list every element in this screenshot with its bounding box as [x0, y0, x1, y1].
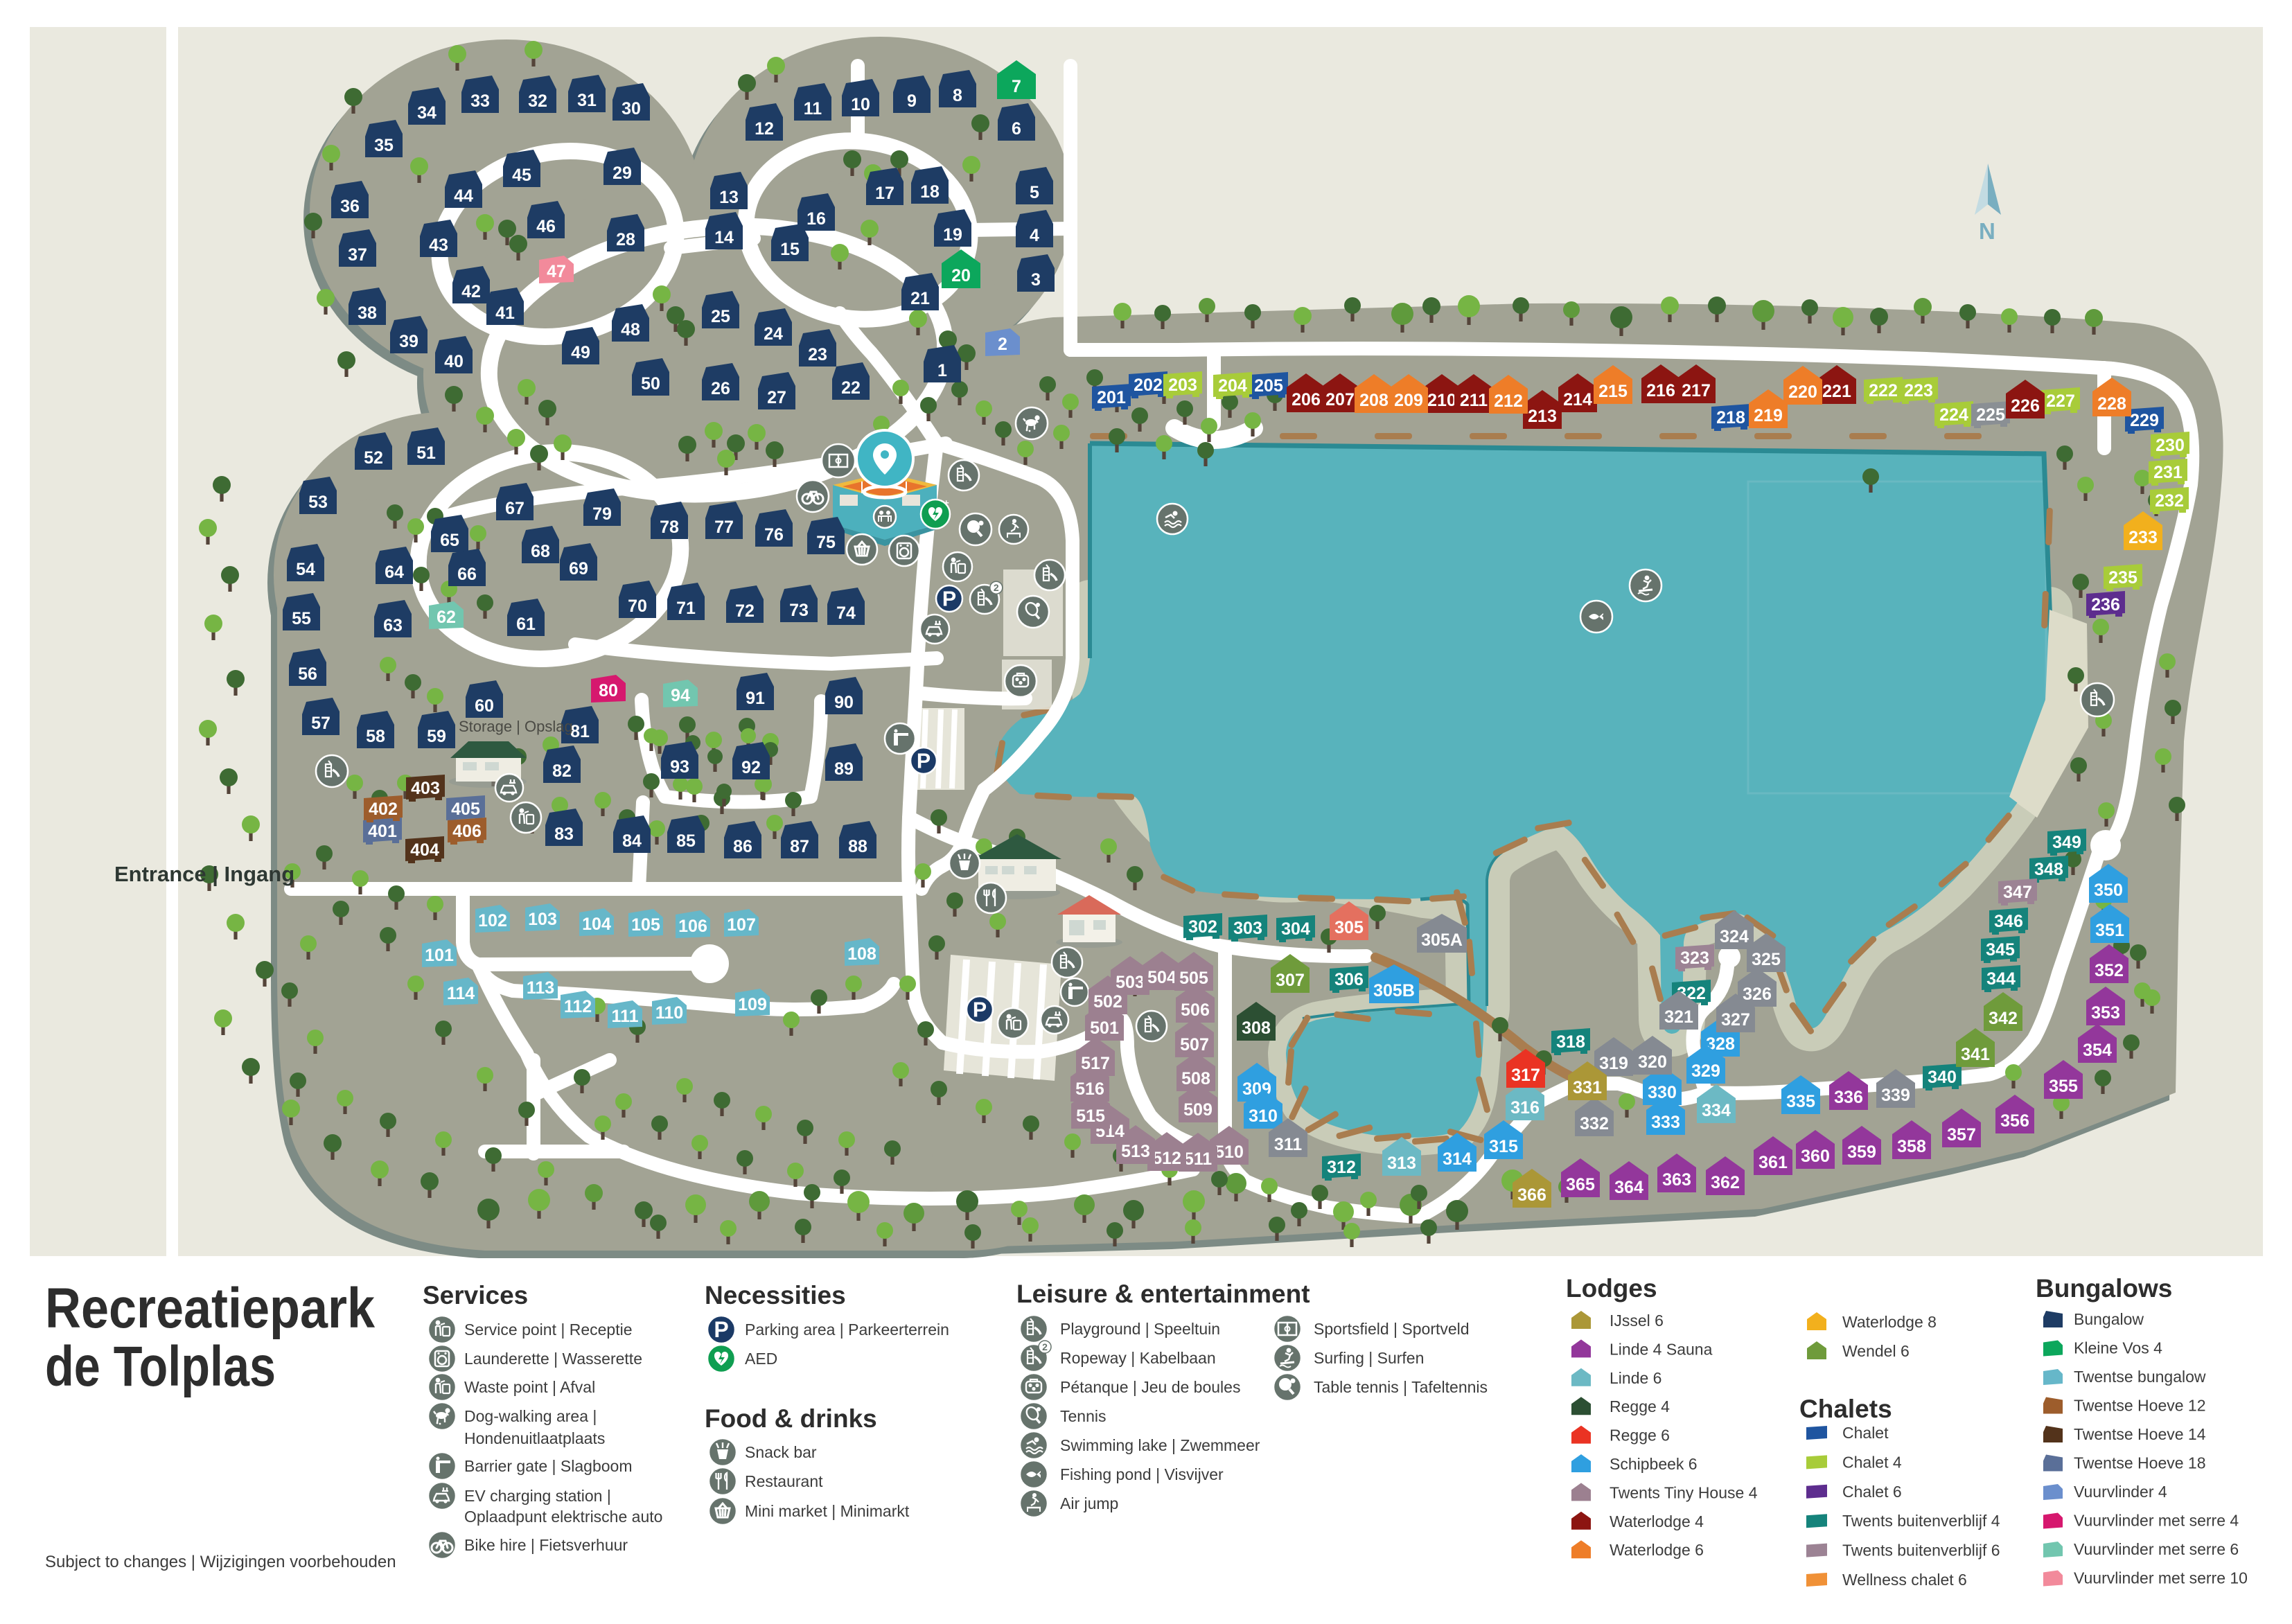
- svg-text:Kleine Vos 4: Kleine Vos 4: [2074, 1339, 2162, 1357]
- svg-text:3: 3: [1031, 270, 1041, 290]
- svg-text:359: 359: [1847, 1142, 1876, 1162]
- svg-text:232: 232: [2155, 491, 2184, 511]
- svg-text:357: 357: [1947, 1125, 1976, 1145]
- svg-text:31: 31: [577, 91, 597, 110]
- svg-text:Vuurvlinder met serre 10: Vuurvlinder met serre 10: [2074, 1569, 2248, 1587]
- svg-text:203: 203: [1168, 376, 1197, 395]
- svg-text:316: 316: [1510, 1098, 1540, 1118]
- svg-text:59: 59: [427, 727, 446, 746]
- svg-text:57: 57: [311, 714, 330, 733]
- svg-text:2: 2: [994, 582, 999, 593]
- svg-text:35: 35: [374, 136, 394, 155]
- svg-text:307: 307: [1276, 971, 1305, 990]
- svg-text:513: 513: [1121, 1142, 1150, 1161]
- svg-text:334: 334: [1702, 1101, 1731, 1120]
- svg-text:320: 320: [1638, 1052, 1667, 1072]
- svg-text:Barrier gate | Slagboom: Barrier gate | Slagboom: [464, 1457, 633, 1475]
- svg-text:Parking area | Parkeerterrein: Parking area | Parkeerterrein: [745, 1321, 949, 1339]
- svg-text:348: 348: [2034, 860, 2063, 879]
- svg-text:58: 58: [366, 727, 385, 746]
- svg-text:Waterlodge 6: Waterlodge 6: [1610, 1541, 1704, 1559]
- svg-text:79: 79: [592, 504, 612, 524]
- svg-text:314: 314: [1443, 1149, 1472, 1169]
- svg-text:104: 104: [582, 915, 611, 934]
- svg-text:Twentse bungalow: Twentse bungalow: [2074, 1368, 2206, 1386]
- svg-text:503: 503: [1116, 973, 1145, 992]
- svg-text:206: 206: [1292, 390, 1321, 409]
- svg-text:66: 66: [457, 565, 477, 584]
- svg-text:305: 305: [1334, 918, 1364, 937]
- svg-text:333: 333: [1651, 1113, 1680, 1132]
- svg-text:Twents buitenverblijf 6: Twents buitenverblijf 6: [1842, 1542, 2000, 1560]
- svg-text:220: 220: [1788, 382, 1817, 402]
- svg-text:305B: 305B: [1373, 981, 1415, 1000]
- svg-text:86: 86: [733, 837, 752, 856]
- svg-text:AED: AED: [745, 1350, 777, 1368]
- svg-text:217: 217: [1682, 381, 1711, 400]
- svg-text:506: 506: [1181, 1000, 1210, 1020]
- svg-text:111: 111: [612, 1007, 639, 1026]
- svg-text:1: 1: [937, 361, 947, 380]
- svg-text:211: 211: [1460, 391, 1488, 410]
- svg-text:327: 327: [1721, 1010, 1750, 1030]
- svg-text:109: 109: [738, 995, 767, 1014]
- svg-text:Launderette | Wasserette: Launderette | Wasserette: [464, 1350, 642, 1368]
- svg-text:319: 319: [1599, 1054, 1628, 1073]
- svg-text:363: 363: [1662, 1170, 1691, 1190]
- svg-text:18: 18: [920, 182, 940, 202]
- svg-text:60: 60: [475, 696, 494, 716]
- svg-text:Subject to changes | Wijziging: Subject to changes | Wijzigingen voorbeh…: [45, 1553, 396, 1571]
- svg-text:80: 80: [599, 681, 618, 700]
- svg-text:8: 8: [953, 86, 962, 105]
- svg-text:303: 303: [1233, 919, 1262, 938]
- svg-text:90: 90: [834, 693, 854, 712]
- svg-text:Storage | Opslag: Storage | Opslag: [459, 718, 573, 735]
- svg-text:83: 83: [554, 824, 574, 844]
- svg-text:517: 517: [1081, 1054, 1110, 1073]
- svg-text:23: 23: [808, 345, 827, 364]
- svg-text:345: 345: [1986, 940, 2015, 960]
- svg-text:63: 63: [383, 616, 403, 635]
- svg-text:213: 213: [1528, 407, 1557, 426]
- svg-text:114: 114: [447, 984, 475, 1003]
- svg-text:7: 7: [1012, 77, 1021, 96]
- svg-text:25: 25: [711, 307, 730, 326]
- svg-text:362: 362: [1711, 1173, 1740, 1192]
- svg-text:405: 405: [451, 800, 480, 819]
- svg-text:Chalet 6: Chalet 6: [1842, 1483, 1902, 1501]
- svg-text:61: 61: [516, 615, 536, 634]
- svg-text:108: 108: [847, 944, 876, 964]
- svg-text:75: 75: [816, 533, 836, 552]
- svg-text:516: 516: [1075, 1079, 1104, 1099]
- svg-text:208: 208: [1359, 391, 1389, 410]
- svg-text:Snack bar: Snack bar: [745, 1443, 817, 1461]
- svg-text:321: 321: [1664, 1007, 1693, 1027]
- svg-text:Twentse Hoeve 14: Twentse Hoeve 14: [2074, 1425, 2206, 1443]
- svg-text:216: 216: [1646, 381, 1675, 400]
- svg-text:230: 230: [2156, 436, 2185, 455]
- svg-text:224: 224: [1939, 405, 1968, 425]
- svg-text:43: 43: [429, 236, 448, 255]
- svg-text:Wendel 6: Wendel 6: [1842, 1342, 1910, 1360]
- svg-text:236: 236: [2091, 595, 2120, 615]
- svg-text:Ropeway | Kabelbaan: Ropeway | Kabelbaan: [1060, 1349, 1216, 1367]
- svg-text:504: 504: [1147, 968, 1176, 987]
- svg-text:14: 14: [714, 228, 734, 247]
- svg-text:323: 323: [1680, 948, 1709, 968]
- svg-text:305A: 305A: [1421, 930, 1463, 950]
- svg-text:Sportsfield | Sportveld: Sportsfield | Sportveld: [1314, 1320, 1470, 1338]
- svg-text:231: 231: [2153, 463, 2183, 482]
- svg-text:84: 84: [622, 831, 642, 851]
- svg-text:227: 227: [2046, 391, 2075, 411]
- svg-text:74: 74: [836, 603, 856, 623]
- svg-text:38: 38: [358, 303, 377, 323]
- svg-text:Table tennis | Tafeltennis: Table tennis | Tafeltennis: [1314, 1378, 1488, 1396]
- svg-text:312: 312: [1327, 1158, 1356, 1177]
- svg-text:16: 16: [806, 209, 826, 229]
- svg-text:P: P: [917, 749, 931, 773]
- svg-text:302: 302: [1188, 917, 1217, 937]
- svg-text:73: 73: [789, 601, 809, 620]
- svg-text:352: 352: [2095, 961, 2124, 980]
- svg-text:339: 339: [1881, 1086, 1910, 1105]
- svg-text:62: 62: [437, 608, 456, 627]
- svg-text:70: 70: [628, 597, 647, 616]
- svg-text:56: 56: [298, 664, 317, 684]
- svg-text:222: 222: [1869, 381, 1898, 400]
- svg-text:304: 304: [1281, 919, 1310, 939]
- svg-text:Waste point | Afval: Waste point | Afval: [464, 1378, 595, 1396]
- svg-text:102: 102: [478, 911, 507, 930]
- svg-text:212: 212: [1494, 391, 1523, 411]
- svg-text:Chalets: Chalets: [1799, 1395, 1892, 1423]
- svg-text:214: 214: [1563, 390, 1592, 409]
- svg-text:351: 351: [2095, 921, 2124, 940]
- svg-text:51: 51: [416, 443, 436, 463]
- svg-text:22: 22: [841, 378, 861, 398]
- svg-text:110: 110: [655, 1003, 683, 1023]
- svg-text:204: 204: [1218, 376, 1247, 396]
- svg-text:358: 358: [1897, 1137, 1926, 1156]
- svg-text:Service point | Receptie: Service point | Receptie: [464, 1321, 633, 1339]
- svg-text:311: 311: [1274, 1135, 1302, 1154]
- svg-text:15: 15: [780, 240, 800, 259]
- svg-text:Chalet 4: Chalet 4: [1842, 1453, 1902, 1471]
- svg-text:78: 78: [660, 518, 679, 537]
- svg-text:Bungalow: Bungalow: [2074, 1310, 2144, 1328]
- svg-text:502: 502: [1093, 992, 1122, 1012]
- svg-text:27: 27: [767, 388, 786, 407]
- svg-text:Schipbeek 6: Schipbeek 6: [1610, 1455, 1698, 1473]
- svg-text:20: 20: [951, 266, 971, 285]
- svg-text:201: 201: [1097, 388, 1126, 407]
- svg-text:54: 54: [296, 560, 315, 579]
- svg-text:Tennis: Tennis: [1060, 1407, 1106, 1425]
- svg-text:5: 5: [1030, 183, 1039, 202]
- svg-text:Restaurant: Restaurant: [745, 1472, 823, 1490]
- svg-text:356: 356: [2000, 1111, 2029, 1131]
- svg-text:Twents buitenverblijf 4: Twents buitenverblijf 4: [1842, 1512, 2000, 1530]
- svg-text:92: 92: [741, 758, 761, 777]
- svg-text:87: 87: [790, 837, 809, 856]
- svg-text:515: 515: [1076, 1106, 1105, 1126]
- svg-text:13: 13: [719, 188, 739, 207]
- svg-text:346: 346: [1994, 912, 2023, 931]
- svg-text:210: 210: [1427, 391, 1456, 410]
- svg-text:313: 313: [1387, 1154, 1416, 1173]
- svg-text:Vuurvlinder met serre 6: Vuurvlinder met serre 6: [2074, 1540, 2239, 1558]
- svg-text:Pétanque | Jeu de boules: Pétanque | Jeu de boules: [1060, 1378, 1240, 1396]
- svg-text:349: 349: [2052, 833, 2081, 852]
- svg-text:67: 67: [505, 499, 524, 518]
- svg-text:360: 360: [1801, 1147, 1830, 1166]
- svg-text:324: 324: [1720, 927, 1749, 946]
- svg-text:42: 42: [461, 282, 481, 301]
- svg-text:P: P: [714, 1317, 728, 1342]
- svg-text:10: 10: [851, 95, 870, 114]
- svg-text:EV charging station |: EV charging station |: [464, 1487, 611, 1505]
- svg-text:77: 77: [714, 518, 734, 537]
- svg-text:55: 55: [292, 609, 311, 628]
- svg-text:509: 509: [1183, 1100, 1213, 1120]
- svg-text:105: 105: [631, 915, 660, 935]
- svg-text:Vuurvlinder 4: Vuurvlinder 4: [2074, 1483, 2167, 1501]
- svg-text:2: 2: [998, 335, 1007, 354]
- svg-text:28: 28: [616, 230, 635, 249]
- svg-text:P: P: [973, 998, 987, 1021]
- svg-text:Linde 4 Sauna: Linde 4 Sauna: [1610, 1340, 1713, 1358]
- svg-text:335: 335: [1786, 1092, 1815, 1111]
- svg-text:Waterlodge 8: Waterlodge 8: [1842, 1313, 1937, 1331]
- svg-text:49: 49: [571, 343, 590, 362]
- svg-text:361: 361: [1758, 1153, 1788, 1172]
- svg-text:Regge 4: Regge 4: [1610, 1397, 1670, 1415]
- svg-text:6: 6: [1012, 119, 1021, 139]
- svg-text:354: 354: [2083, 1041, 2112, 1060]
- svg-text:233: 233: [2128, 528, 2158, 547]
- svg-text:325: 325: [1752, 950, 1781, 969]
- svg-text:21: 21: [910, 289, 930, 308]
- svg-text:342: 342: [1989, 1009, 2018, 1028]
- svg-text:501: 501: [1090, 1018, 1119, 1038]
- svg-text:69: 69: [569, 559, 588, 579]
- svg-text:Leisure & entertainment: Leisure & entertainment: [1016, 1280, 1310, 1308]
- svg-text:89: 89: [834, 759, 854, 779]
- svg-text:221: 221: [1822, 382, 1851, 401]
- svg-text:365: 365: [1566, 1175, 1595, 1194]
- svg-text:113: 113: [527, 978, 554, 998]
- svg-text:317: 317: [1511, 1066, 1540, 1085]
- svg-text:329: 329: [1691, 1061, 1720, 1081]
- svg-text:45: 45: [512, 166, 531, 185]
- svg-text:112: 112: [564, 997, 592, 1016]
- svg-text:50: 50: [641, 374, 660, 394]
- svg-text:Swimming lake | Zwemmeer: Swimming lake | Zwemmeer: [1060, 1436, 1260, 1454]
- svg-text:219: 219: [1754, 406, 1783, 425]
- svg-text:Twents Tiny House 4: Twents Tiny House 4: [1610, 1483, 1758, 1501]
- svg-text:39: 39: [399, 332, 418, 351]
- svg-text:103: 103: [528, 910, 557, 929]
- svg-text:52: 52: [364, 448, 383, 468]
- svg-text:12: 12: [755, 119, 774, 139]
- svg-text:71: 71: [676, 599, 696, 618]
- svg-text:41: 41: [495, 303, 515, 323]
- svg-text:Bike hire | Fietsverhuur: Bike hire | Fietsverhuur: [464, 1536, 628, 1554]
- svg-text:88: 88: [848, 837, 867, 856]
- svg-text:406: 406: [452, 822, 482, 841]
- svg-text:401: 401: [368, 822, 397, 841]
- svg-text:IJssel 6: IJssel 6: [1610, 1312, 1664, 1330]
- svg-text:29: 29: [612, 164, 632, 183]
- svg-text:91: 91: [746, 689, 765, 708]
- svg-text:Fishing pond | Visvijver: Fishing pond | Visvijver: [1060, 1465, 1224, 1483]
- svg-text:403: 403: [411, 779, 440, 798]
- svg-text:512: 512: [1152, 1149, 1181, 1168]
- svg-text:218: 218: [1716, 408, 1745, 427]
- svg-text:85: 85: [676, 831, 696, 851]
- svg-text:326: 326: [1743, 985, 1772, 1004]
- svg-text:Bungalows: Bungalows: [2036, 1274, 2172, 1303]
- svg-text:336: 336: [1834, 1088, 1863, 1107]
- svg-text:Lodges: Lodges: [1566, 1274, 1657, 1303]
- svg-text:Necessities: Necessities: [705, 1281, 846, 1309]
- svg-text:511: 511: [1184, 1149, 1212, 1169]
- svg-text:308: 308: [1242, 1018, 1271, 1038]
- svg-text:404: 404: [410, 840, 439, 860]
- svg-text:Air jump: Air jump: [1060, 1494, 1118, 1512]
- svg-text:94: 94: [671, 686, 690, 705]
- svg-text:344: 344: [1986, 969, 2016, 989]
- svg-text:306: 306: [1334, 970, 1364, 989]
- svg-text:Twentse Hoeve 18: Twentse Hoeve 18: [2074, 1454, 2206, 1472]
- svg-text:353: 353: [2091, 1003, 2120, 1023]
- svg-text:235: 235: [2108, 568, 2137, 588]
- svg-text:76: 76: [764, 525, 784, 545]
- svg-text:315: 315: [1489, 1137, 1518, 1156]
- svg-text:Recreatiepark: Recreatiepark: [45, 1277, 375, 1340]
- svg-text:205: 205: [1254, 376, 1283, 396]
- svg-text:44: 44: [454, 186, 473, 206]
- svg-text:+: +: [944, 497, 949, 508]
- svg-text:36: 36: [340, 197, 360, 216]
- svg-text:Wellness chalet 6: Wellness chalet 6: [1842, 1571, 1967, 1589]
- svg-text:Hondenuitlaatplaats: Hondenuitlaatplaats: [464, 1429, 605, 1447]
- svg-text:226: 226: [2011, 396, 2040, 416]
- svg-text:332: 332: [1580, 1114, 1609, 1133]
- svg-text:Playground | Speeltuin: Playground | Speeltuin: [1060, 1320, 1220, 1338]
- svg-text:65: 65: [440, 531, 459, 550]
- svg-text:46: 46: [536, 217, 556, 236]
- svg-text:64: 64: [385, 563, 404, 582]
- svg-text:82: 82: [552, 761, 572, 781]
- svg-text:32: 32: [528, 91, 547, 111]
- svg-text:229: 229: [2130, 411, 2159, 430]
- svg-text:402: 402: [369, 800, 398, 819]
- svg-text:P: P: [942, 587, 956, 610]
- svg-text:Chalet: Chalet: [1842, 1424, 1889, 1442]
- svg-text:209: 209: [1394, 391, 1423, 410]
- svg-text:340: 340: [1928, 1068, 1957, 1087]
- svg-text:68: 68: [531, 542, 550, 561]
- svg-text:Oplaadpunt elektrische auto: Oplaadpunt elektrische auto: [464, 1508, 662, 1526]
- svg-text:11: 11: [804, 99, 822, 118]
- svg-text:202: 202: [1134, 376, 1163, 395]
- svg-text:93: 93: [670, 757, 689, 777]
- svg-text:107: 107: [727, 915, 756, 935]
- svg-text:Vuurvlinder met serre 4: Vuurvlinder met serre 4: [2074, 1512, 2239, 1530]
- svg-text:2: 2: [1042, 1341, 1048, 1352]
- svg-text:225: 225: [1976, 405, 2005, 425]
- svg-text:364: 364: [1614, 1178, 1643, 1197]
- svg-text:53: 53: [308, 493, 328, 512]
- svg-text:347: 347: [2003, 883, 2032, 902]
- svg-text:228: 228: [2097, 394, 2126, 414]
- svg-text:355: 355: [2049, 1077, 2078, 1096]
- svg-text:310: 310: [1249, 1106, 1278, 1126]
- svg-text:Waterlodge 4: Waterlodge 4: [1610, 1512, 1704, 1530]
- svg-text:Twentse Hoeve 12: Twentse Hoeve 12: [2074, 1397, 2206, 1415]
- svg-text:350: 350: [2094, 881, 2123, 900]
- svg-text:48: 48: [621, 320, 640, 339]
- svg-text:47: 47: [547, 262, 566, 281]
- svg-text:37: 37: [348, 245, 367, 265]
- svg-text:366: 366: [1517, 1185, 1546, 1205]
- svg-text:Food & drinks: Food & drinks: [705, 1404, 877, 1433]
- svg-text:215: 215: [1598, 382, 1628, 401]
- svg-text:Mini market | Minimarkt: Mini market | Minimarkt: [745, 1502, 910, 1520]
- svg-text:+: +: [729, 1342, 734, 1353]
- svg-text:de Tolplas: de Tolplas: [45, 1335, 276, 1398]
- svg-text:Services: Services: [423, 1281, 528, 1309]
- svg-text:Linde 6: Linde 6: [1610, 1369, 1661, 1387]
- svg-text:318: 318: [1556, 1032, 1585, 1052]
- svg-text:510: 510: [1215, 1142, 1244, 1162]
- svg-text:101: 101: [425, 946, 454, 965]
- svg-text:223: 223: [1904, 381, 1933, 400]
- svg-text:33: 33: [470, 91, 490, 111]
- svg-text:81: 81: [570, 722, 590, 741]
- svg-text:Regge 6: Regge 6: [1610, 1427, 1670, 1445]
- svg-text:507: 507: [1180, 1035, 1209, 1054]
- svg-text:40: 40: [444, 352, 464, 371]
- svg-text:4: 4: [1030, 226, 1039, 245]
- svg-text:72: 72: [735, 601, 755, 621]
- svg-text:N: N: [1979, 218, 1995, 244]
- svg-text:Surfing | Surfen: Surfing | Surfen: [1314, 1349, 1424, 1367]
- svg-text:34: 34: [417, 103, 437, 123]
- svg-text:331: 331: [1573, 1078, 1602, 1097]
- svg-text:341: 341: [1961, 1045, 1990, 1064]
- svg-text:19: 19: [943, 225, 962, 245]
- svg-text:24: 24: [764, 324, 783, 344]
- svg-text:Dog-walking area |: Dog-walking area |: [464, 1407, 597, 1425]
- svg-text:26: 26: [711, 379, 730, 398]
- svg-text:30: 30: [622, 99, 641, 118]
- svg-text:106: 106: [678, 917, 707, 936]
- svg-text:Entrance | Ingang: Entrance | Ingang: [114, 862, 294, 886]
- svg-text:207: 207: [1325, 390, 1355, 409]
- svg-text:17: 17: [875, 184, 894, 203]
- svg-text:9: 9: [907, 91, 917, 111]
